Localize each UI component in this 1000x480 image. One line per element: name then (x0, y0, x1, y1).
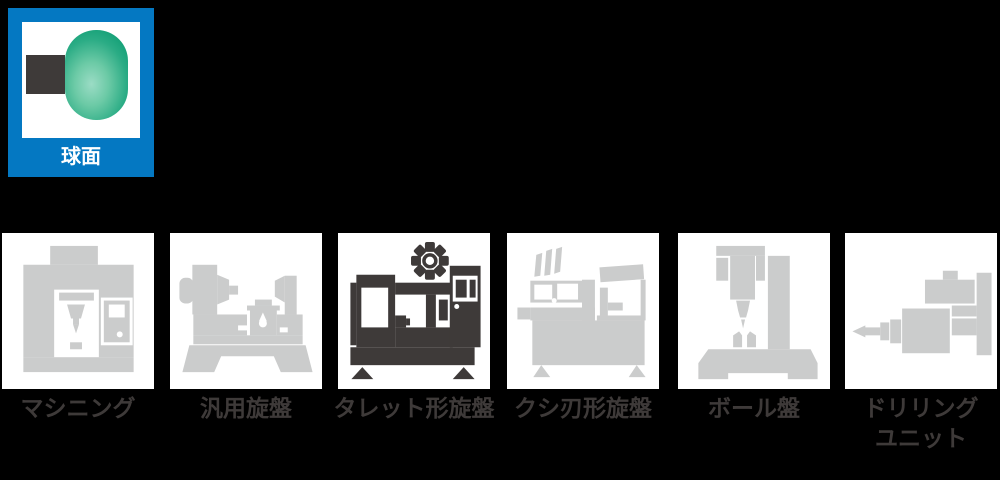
gang-tool-lathe-icon (507, 233, 659, 389)
drill-press-icon (678, 233, 830, 389)
machine-tile-bg (338, 233, 490, 389)
sphere-workpiece-icon (22, 22, 140, 138)
drilling-unit-icon (845, 233, 997, 389)
machine-tile-drill-press[interactable]: ボール盤 (678, 233, 830, 453)
machine-tile-bg (845, 233, 997, 389)
machine-label: クシ刃形旋盤 (497, 393, 669, 423)
machining-center-icon (2, 233, 154, 389)
machine-tile-engine-lathe[interactable]: 汎用旋盤 (170, 233, 322, 453)
machine-tile-bg (170, 233, 322, 389)
machine-label: タレット形旋盤 (328, 393, 500, 423)
engine-lathe-icon (170, 233, 322, 389)
machine-tile-turret-lathe[interactable]: タレット形旋盤 (338, 233, 490, 453)
machine-label: ドリリング ユニット (835, 393, 1000, 453)
selected-shape-label: 球面 (8, 139, 154, 177)
turret-lathe-icon (338, 233, 490, 389)
machine-label: ボール盤 (668, 393, 840, 423)
sphere-shape (65, 30, 128, 120)
machine-tile-drilling-unit[interactable]: ドリリング ユニット (845, 233, 997, 453)
workpiece-machine-selector: 球面 マシニング (0, 0, 1000, 480)
machine-tile-gang-tool-lathe[interactable]: クシ刃形旋盤 (507, 233, 659, 453)
machine-tile-bg (2, 233, 154, 389)
selected-shape-tile[interactable]: 球面 (8, 8, 154, 177)
machine-label: 汎用旋盤 (160, 393, 332, 423)
machine-tile-bg (507, 233, 659, 389)
machine-tile-bg (678, 233, 830, 389)
chuck-square-shape (26, 55, 65, 94)
machine-label: マシニング (0, 393, 164, 423)
machine-tile-machining-center[interactable]: マシニング (2, 233, 154, 453)
